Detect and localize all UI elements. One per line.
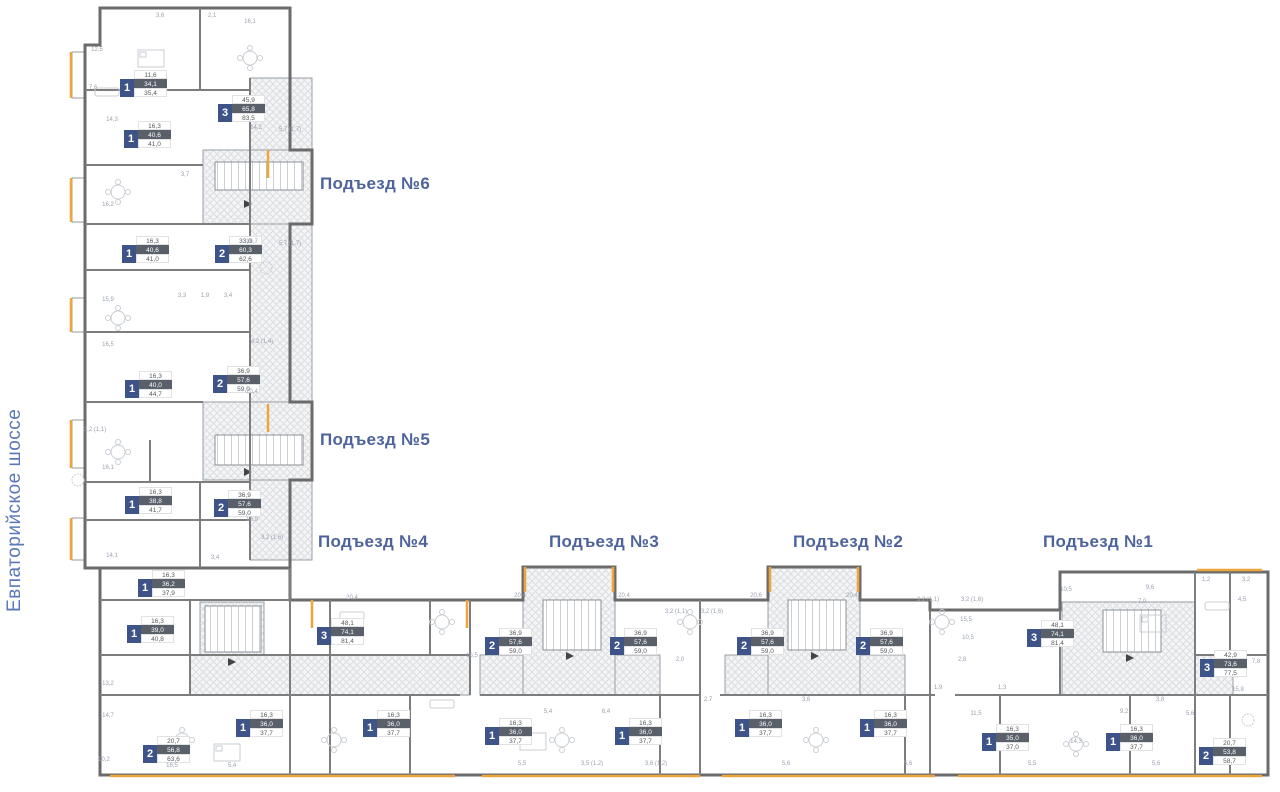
area-top: 16,3 — [629, 718, 662, 727]
room-count: 2 — [214, 499, 228, 517]
dimension-label: 15,8 — [1232, 687, 1244, 693]
room-count: 1 — [138, 579, 152, 597]
area-top: 42,9 — [1214, 650, 1247, 659]
dimension-label: 9,2 — [1120, 709, 1128, 715]
room-count: 2 — [213, 375, 227, 393]
apartment-badge[interactable]: 116,336,037,7 — [485, 718, 532, 745]
area-mid: 57,6 — [228, 499, 261, 508]
room-count: 1 — [122, 245, 136, 263]
area-total: 44,7 — [139, 389, 172, 398]
dimension-label: 5,6 — [1152, 761, 1160, 767]
room-count: 1 — [860, 719, 874, 737]
room-count: 3 — [1200, 659, 1214, 677]
dimension-label: 1,3 — [998, 685, 1006, 691]
apartment-badge[interactable]: 116,340,044,7 — [125, 371, 172, 398]
area-total: 35,4 — [134, 88, 167, 97]
dimension-label: 5,6 — [782, 761, 790, 767]
area-mid: 36,0 — [250, 719, 283, 728]
dimension-label: 5,6 — [1186, 711, 1194, 717]
dimension-label: 3,2 (1,1) — [917, 597, 939, 603]
area-top: 16,3 — [152, 570, 185, 579]
room-count: 1 — [1106, 733, 1120, 751]
apartment-badge[interactable]: 220,753,858,7 — [1199, 738, 1246, 765]
area-total: 83,5 — [232, 113, 265, 122]
dimension-label: 14,3 — [1070, 739, 1082, 745]
apartment-badge[interactable]: 220,756,863,6 — [143, 736, 190, 763]
area-mid: 35,0 — [996, 733, 1029, 742]
apartment-badge[interactable]: 116,336,237,9 — [138, 570, 185, 597]
area-mid: 57,6 — [227, 375, 260, 384]
dimension-label: 16,7 — [246, 239, 258, 245]
area-total: 41,7 — [139, 505, 172, 514]
dimension-label: 2,8 — [958, 657, 966, 663]
area-mid: 40,6 — [136, 245, 169, 254]
dimension-label: 16,2 — [102, 202, 114, 208]
entrance-label-6: Подъезд №6 — [320, 174, 430, 194]
dimension-label: 16,1 — [244, 19, 256, 25]
stair-treads — [205, 162, 1161, 652]
apartment-badge[interactable]: 348,174,181,4 — [1027, 620, 1074, 647]
street-label: Евпаторийское шоссе — [4, 409, 26, 612]
room-count: 1 — [485, 727, 499, 745]
room-count: 3 — [317, 627, 331, 645]
area-top: 36,9 — [870, 628, 903, 637]
dimension-label: 14,7 — [102, 713, 114, 719]
dimension-label: 3,7 — [181, 172, 189, 178]
dimension-label: 3,8 — [1156, 697, 1164, 703]
area-total: 40,8 — [141, 634, 174, 643]
apartment-badge[interactable]: 236,957,659,0 — [214, 490, 261, 517]
dimension-label: 11,5 — [970, 711, 981, 717]
area-mid: 73,6 — [1214, 659, 1247, 668]
area-top: 11,6 — [134, 70, 167, 79]
dimension-label: 20,4 — [346, 595, 358, 601]
area-total: 41,0 — [138, 139, 171, 148]
area-top: 36,9 — [499, 628, 532, 637]
dimension-label: 14,1 — [106, 553, 118, 559]
area-top: 16,3 — [874, 710, 907, 719]
area-mid: 56,8 — [157, 745, 190, 754]
dimension-label: 5,6 — [904, 761, 912, 767]
dimension-label: 3,6 — [156, 13, 164, 19]
area-top: 48,1 — [331, 618, 364, 627]
area-top: 16,3 — [749, 710, 782, 719]
dimension-label: 2,1 — [208, 13, 216, 19]
dimension-label: 20,4 — [514, 593, 526, 599]
dimension-label: 15,5 — [960, 617, 972, 623]
dimension-label: 7,8 — [1252, 659, 1260, 665]
apartment-badge[interactable]: 116,339,040,8 — [127, 616, 174, 643]
dimension-label: 20,4 — [618, 593, 630, 599]
apartment-badge[interactable]: 236,957,659,0 — [856, 628, 903, 655]
area-total: 37,7 — [749, 728, 782, 737]
area-total: 37,9 — [152, 588, 185, 597]
area-total: 37,7 — [629, 736, 662, 745]
area-mid: 40,0 — [139, 380, 172, 389]
room-count: 2 — [610, 637, 624, 655]
dimension-label: 5,4 — [544, 709, 552, 715]
dimension-label: 5,7 (1,7) — [279, 127, 301, 133]
room-count: 1 — [735, 719, 749, 737]
area-mid: 36,0 — [749, 719, 782, 728]
dimension-label: 16,1 — [102, 465, 114, 471]
dimension-label: 3,2 (1,6) — [701, 609, 723, 615]
dimension-label: 6,4 — [602, 709, 610, 715]
area-total: 62,6 — [229, 254, 262, 263]
area-top: 16,3 — [377, 710, 410, 719]
area-mid: 38,8 — [139, 496, 172, 505]
area-total: 37,0 — [996, 742, 1029, 751]
area-total: 59,0 — [624, 646, 657, 655]
dimension-label: 7,0 — [1138, 599, 1146, 605]
room-count: 1 — [363, 719, 377, 737]
apartment-badge[interactable]: 236,957,659,0 — [485, 628, 532, 655]
dimension-label: 1,9 — [934, 685, 942, 691]
room-count: 3 — [1027, 629, 1041, 647]
area-top: 20,7 — [1213, 738, 1246, 747]
room-count: 2 — [143, 745, 157, 763]
room-count: 1 — [236, 719, 250, 737]
apartment-badge[interactable]: 111,634,135,4 — [120, 70, 167, 97]
room-count: 2 — [1199, 747, 1213, 765]
room-count: 1 — [127, 625, 141, 643]
dimension-label: 2,0 — [676, 657, 684, 663]
entrance-label-4: Подъезд №4 — [318, 532, 428, 552]
area-mid: 65,8 — [232, 104, 265, 113]
entrance-label-5: Подъезд №5 — [320, 430, 430, 450]
room-count: 1 — [125, 496, 139, 514]
area-mid: 60,3 — [229, 245, 262, 254]
area-total: 59,0 — [751, 646, 784, 655]
area-total: 77,5 — [1214, 668, 1247, 677]
apartment-badge[interactable]: 116,336,037,7 — [735, 710, 782, 737]
area-total: 37,7 — [499, 736, 532, 745]
area-mid: 36,0 — [874, 719, 907, 728]
area-top: 16,3 — [136, 236, 169, 245]
area-top: 16,3 — [499, 718, 532, 727]
dimension-label: 14,2 — [250, 125, 262, 131]
dimension-label: 3,4 — [211, 555, 219, 561]
apartment-badge[interactable]: 116,340,641,0 — [122, 236, 169, 263]
area-top: 45,9 — [232, 95, 265, 104]
dimension-label: 16,5 — [102, 342, 114, 348]
dimension-label: 14,3 — [106, 117, 118, 123]
room-count: 3 — [218, 104, 232, 122]
area-total: 37,7 — [250, 728, 283, 737]
apartment-badge[interactable]: 116,335,037,0 — [982, 724, 1029, 751]
area-top: 16,3 — [250, 710, 283, 719]
area-mid: 74,1 — [331, 627, 364, 636]
dimension-label: 3,2 (1,6) — [961, 597, 983, 603]
dimension-label: 20,6 — [750, 593, 762, 599]
apartment-badge[interactable]: 116,336,037,7 — [860, 710, 907, 737]
area-total: 59,0 — [870, 646, 903, 655]
area-top: 48,1 — [1041, 620, 1074, 629]
area-mid: 57,6 — [751, 637, 784, 646]
dimension-label: 15,9 — [102, 297, 114, 303]
area-mid: 34,1 — [134, 79, 167, 88]
hatched-common-areas — [190, 78, 1233, 695]
area-top: 16,3 — [996, 724, 1029, 733]
apartment-badge[interactable]: 116,336,037,7 — [236, 710, 283, 737]
room-count: 1 — [125, 380, 139, 398]
dimension-label: 10,5 — [1060, 587, 1072, 593]
dimension-label: 9,6 — [1146, 585, 1154, 591]
dimension-label: 3,5 (1,2) — [581, 761, 603, 767]
dimension-label: 3,4 — [224, 293, 232, 299]
entrance-label-2: Подъезд №2 — [793, 532, 903, 552]
area-mid: 36,0 — [629, 727, 662, 736]
dimension-label: 7,6 — [89, 85, 97, 91]
room-count: 1 — [615, 727, 629, 745]
area-top: 20,7 — [157, 736, 190, 745]
room-count: 2 — [737, 637, 751, 655]
dimension-label: 3,8 — [802, 697, 810, 703]
apartment-badge[interactable]: 116,338,841,7 — [125, 487, 172, 514]
dimension-label: 10,5 — [962, 635, 974, 641]
room-count: 2 — [856, 637, 870, 655]
area-top: 16,3 — [138, 121, 171, 130]
dimension-label: 16,5 — [166, 763, 178, 769]
dimension-label: 20,4 — [846, 593, 858, 599]
dimension-label: 5,4 — [228, 763, 236, 769]
area-total: 81,4 — [331, 636, 364, 645]
area-mid: 74,1 — [1041, 629, 1074, 638]
apartment-badge[interactable]: 236,957,659,0 — [737, 628, 784, 655]
area-total: 59,0 — [228, 508, 261, 517]
room-count: 1 — [124, 130, 138, 148]
dimension-label: 16,5 — [466, 653, 478, 659]
dimension-label: 13,2 — [102, 681, 114, 687]
room-count: 1 — [982, 733, 996, 751]
apartment-badge[interactable]: 116,340,641,0 — [124, 121, 171, 148]
dimension-label: 3,6 (1,2) — [645, 761, 667, 767]
area-top: 16,3 — [141, 616, 174, 625]
entrance-label-1: Подъезд №1 — [1043, 532, 1153, 552]
apartment-badge[interactable]: 345,965,883,5 — [218, 95, 265, 122]
area-top: 36,9 — [624, 628, 657, 637]
dimension-label: 1,9 — [201, 293, 209, 299]
dimension-label: 5,5 — [518, 761, 526, 767]
apartment-badge[interactable]: 116,336,037,7 — [615, 718, 662, 745]
room-count: 1 — [120, 79, 134, 97]
area-total: 37,7 — [377, 728, 410, 737]
apartment-badge[interactable]: 116,336,037,7 — [363, 710, 410, 737]
area-mid: 53,8 — [1213, 747, 1246, 756]
entrance-label-3: Подъезд №3 — [549, 532, 659, 552]
area-mid: 36,2 — [152, 579, 185, 588]
dimension-label: 10,2 — [98, 757, 110, 763]
area-total: 59,0 — [499, 646, 532, 655]
dimension-label: 5,7 (1,7) — [279, 241, 301, 247]
dimension-label: 4,5 — [1238, 597, 1246, 603]
dimension-label: 20,4 — [246, 389, 258, 395]
area-top: 16,3 — [1120, 724, 1153, 733]
area-mid: 36,0 — [1120, 733, 1153, 742]
dimension-label: 16,9 — [246, 517, 258, 523]
apartment-badge[interactable]: 116,336,037,7 — [1106, 724, 1153, 751]
area-top: 36,9 — [228, 490, 261, 499]
room-count: 2 — [485, 637, 499, 655]
dimension-label: 2,7 — [704, 697, 712, 703]
dimension-label: 3,2 (1,1) — [665, 609, 687, 615]
area-top: 16,3 — [139, 371, 172, 380]
area-mid: 36,0 — [499, 727, 532, 736]
apartment-badge[interactable]: 236,957,659,0 — [610, 628, 657, 655]
dimension-label: 3,2 — [1242, 577, 1250, 583]
floor-plan-page: Евпаторийское шоссе Подъезд №6Подъезд №5… — [0, 0, 1280, 792]
area-top: 16,3 — [139, 487, 172, 496]
area-total: 37,7 — [874, 728, 907, 737]
dimension-label: 3,2 (1,6) — [261, 535, 283, 541]
area-mid: 39,0 — [141, 625, 174, 634]
area-total: 41,0 — [136, 254, 169, 263]
dimension-label: 1,2 — [1202, 577, 1210, 583]
area-total: 58,7 — [1213, 756, 1246, 765]
dimension-label: 12,5 — [91, 47, 103, 53]
area-mid: 57,6 — [499, 637, 532, 646]
area-mid: 36,0 — [377, 719, 410, 728]
apartment-badge[interactable]: 342,973,677,5 — [1200, 650, 1247, 677]
dimension-label: 4,2 (1,4) — [251, 339, 273, 345]
floor-plan-drawing — [0, 0, 1280, 792]
area-mid: 40,6 — [138, 130, 171, 139]
area-mid: 57,6 — [624, 637, 657, 646]
apartment-badge[interactable]: 348,174,181,4 — [317, 618, 364, 645]
area-total: 37,7 — [1120, 742, 1153, 751]
area-top: 36,9 — [227, 366, 260, 375]
dimension-label: 3,3 — [178, 293, 186, 299]
area-total: 81,4 — [1041, 638, 1074, 647]
area-mid: 57,6 — [870, 637, 903, 646]
room-count: 2 — [215, 245, 229, 263]
area-top: 36,9 — [751, 628, 784, 637]
dimension-label: 5,5 — [1028, 761, 1036, 767]
dimension-label: 3,2 (1,1) — [84, 427, 106, 433]
area-total: 63,6 — [157, 754, 190, 763]
